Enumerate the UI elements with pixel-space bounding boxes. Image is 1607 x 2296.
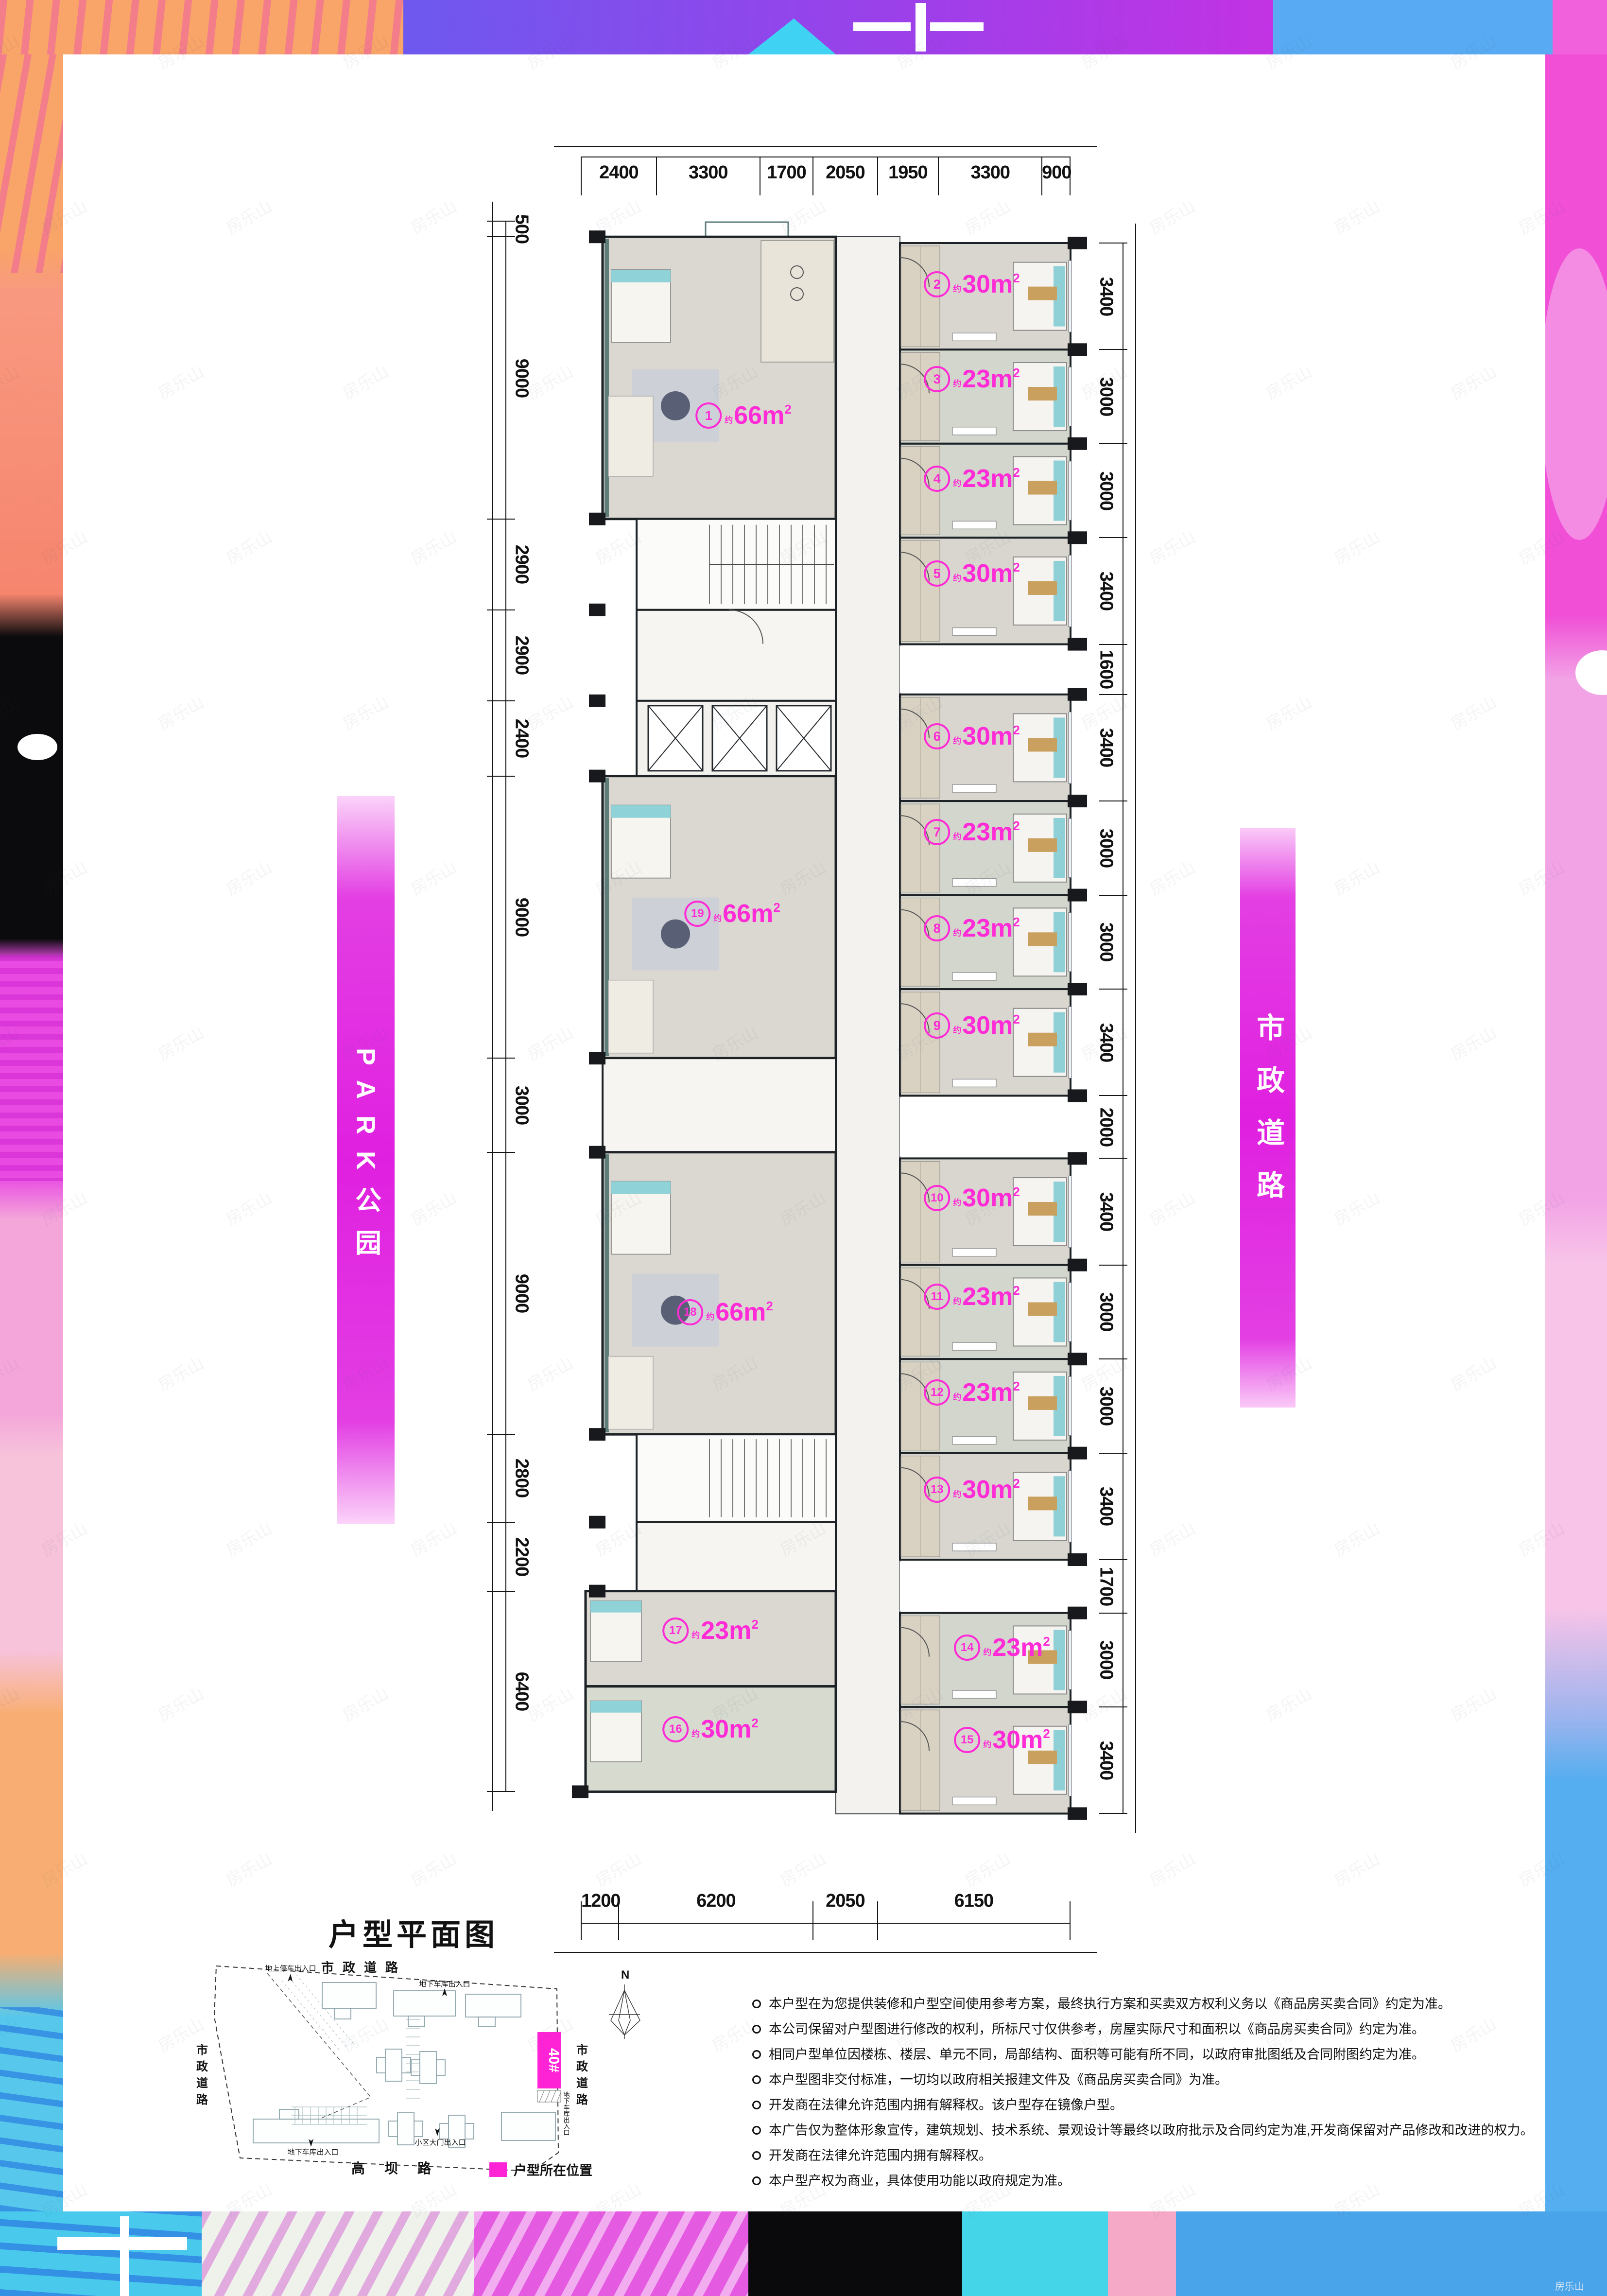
unit-area-sup: 2 — [1043, 1726, 1050, 1741]
unit-area-value: 66 — [715, 1298, 743, 1327]
unit-area-unit: m — [990, 818, 1013, 847]
unit-area-label: 2约30m2 — [924, 270, 1020, 299]
approx-label: 约 — [953, 377, 961, 389]
unit-area-value: 30 — [992, 1725, 1020, 1755]
unit-area-sup: 2 — [773, 900, 780, 915]
unit-area-label: 4约23m2 — [924, 464, 1020, 493]
unit-area-value: 23 — [992, 1633, 1020, 1662]
approx-label: 约 — [706, 1310, 714, 1322]
approx-label: 约 — [953, 926, 961, 938]
unit-area-value: 23 — [962, 365, 990, 394]
unit-area-sup: 2 — [1013, 1379, 1019, 1394]
unit-area-label: 1约66m2 — [695, 401, 792, 430]
approx-label: 约 — [983, 1645, 991, 1657]
unit-number-circle: 13 — [924, 1477, 950, 1503]
unit-area-sup: 2 — [1043, 1634, 1050, 1649]
unit-area-value: 30 — [701, 1715, 729, 1744]
unit-number-circle: 17 — [662, 1618, 689, 1644]
unit-area-unit: m — [751, 899, 773, 928]
approx-label: 约 — [691, 1628, 700, 1640]
unit-number-circle: 11 — [924, 1284, 950, 1310]
unit-area-unit: m — [990, 270, 1013, 299]
unit-area-label: 3约23m2 — [924, 365, 1020, 394]
approx-label: 约 — [983, 1738, 991, 1750]
unit-area-value: 66 — [723, 899, 751, 928]
unit-area-label: 13约30m2 — [924, 1475, 1020, 1504]
unit-number-circle: 14 — [954, 1635, 980, 1661]
unit-area-unit: m — [990, 559, 1013, 588]
unit-area-label: 10约30m2 — [924, 1183, 1020, 1213]
unit-area-label: 5约30m2 — [924, 559, 1020, 588]
unit-area-unit: m — [1020, 1725, 1043, 1755]
unit-area-label: 14约23m2 — [954, 1633, 1050, 1662]
unit-area-value: 30 — [962, 559, 990, 588]
unit-area-unit: m — [729, 1715, 751, 1744]
unit-area-sup: 2 — [766, 1299, 773, 1314]
unit-area-label: 11约23m2 — [924, 1282, 1020, 1311]
approx-label: 约 — [953, 282, 961, 294]
unit-area-unit: m — [743, 1298, 766, 1327]
unit-area-sup: 2 — [1013, 1012, 1019, 1027]
unit-area-sup: 2 — [1013, 560, 1019, 575]
unit-number-circle: 19 — [684, 901, 710, 927]
unit-area-value: 30 — [962, 270, 990, 299]
unit-number-circle: 16 — [662, 1716, 689, 1742]
unit-area-value: 30 — [962, 722, 990, 751]
unit-area-sup: 2 — [1013, 271, 1019, 286]
unit-area-label: 8约23m2 — [924, 914, 1020, 943]
unit-area-label: 6约30m2 — [924, 722, 1020, 751]
approx-label: 约 — [725, 413, 733, 425]
unit-area-sup: 2 — [1013, 1476, 1019, 1491]
unit-area-value: 23 — [701, 1616, 729, 1645]
unit-area-unit: m — [990, 722, 1013, 751]
floorplan-poster-page: PARK公园 市政道路 1约66m2 2约30m2 3约23m2 4约23m2 … — [0, 0, 1607, 2296]
unit-area-unit: m — [990, 914, 1013, 943]
unit-number-circle: 2 — [924, 271, 950, 297]
unit-area-unit: m — [990, 1011, 1013, 1040]
unit-area-label: 12约23m2 — [924, 1378, 1020, 1407]
unit-area-unit: m — [990, 1475, 1013, 1504]
approx-label: 约 — [953, 476, 961, 488]
approx-label: 约 — [713, 911, 722, 923]
unit-area-label: 17约23m2 — [662, 1616, 759, 1645]
approx-label: 约 — [953, 1487, 961, 1499]
unit-area-value: 30 — [962, 1475, 990, 1504]
unit-number-circle: 9 — [924, 1012, 950, 1039]
approx-label: 约 — [953, 1390, 961, 1402]
unit-area-value: 66 — [734, 401, 762, 430]
unit-number-circle: 1 — [695, 402, 722, 429]
unit-area-sup: 2 — [784, 402, 791, 417]
unit-number-circle: 5 — [924, 560, 950, 587]
unit-area-sup: 2 — [751, 1617, 758, 1632]
approx-label: 约 — [953, 1196, 961, 1208]
unit-number-circle: 15 — [954, 1727, 980, 1753]
approx-label: 约 — [953, 1023, 961, 1035]
unit-area-label: 15约30m2 — [954, 1725, 1050, 1755]
unit-number-circle: 4 — [924, 466, 950, 492]
unit-area-unit: m — [990, 365, 1013, 394]
approx-label: 约 — [953, 830, 961, 842]
unit-area-unit: m — [990, 1183, 1013, 1213]
unit-area-value: 23 — [962, 818, 990, 847]
unit-number-circle: 3 — [924, 366, 950, 392]
unit-area-sup: 2 — [1013, 1184, 1019, 1200]
unit-area-label: 7约23m2 — [924, 818, 1020, 847]
unit-area-unit: m — [1020, 1633, 1043, 1662]
unit-number-circle: 10 — [924, 1185, 950, 1211]
unit-number-circle: 7 — [924, 819, 950, 845]
approx-label: 约 — [953, 571, 961, 583]
unit-area-unit: m — [990, 1378, 1013, 1407]
unit-area-label: 19约66m2 — [684, 899, 780, 928]
approx-label: 约 — [953, 1294, 961, 1306]
unit-area-value: 23 — [962, 914, 990, 943]
unit-area-sup: 2 — [1013, 915, 1019, 930]
unit-area-sup: 2 — [1013, 723, 1019, 738]
unit-area-sup: 2 — [1013, 465, 1019, 480]
unit-area-value: 23 — [962, 1378, 990, 1407]
unit-area-value: 30 — [962, 1011, 990, 1040]
unit-area-sup: 2 — [751, 1716, 758, 1731]
unit-area-sup: 2 — [1013, 1283, 1019, 1298]
unit-area-value: 30 — [962, 1183, 990, 1213]
unit-area-unit: m — [990, 464, 1013, 493]
unit-area-label: 16约30m2 — [662, 1715, 759, 1744]
unit-number-circle: 18 — [677, 1299, 703, 1325]
unit-area-unit: m — [762, 401, 784, 430]
unit-area-unit: m — [990, 1282, 1013, 1311]
unit-labels-layer: 1约66m2 2约30m2 3约23m2 4约23m2 5约30m2 6约30m… — [0, 0, 1607, 2296]
unit-area-unit: m — [729, 1616, 751, 1645]
unit-area-value: 23 — [962, 1282, 990, 1311]
unit-area-label: 9约30m2 — [924, 1011, 1020, 1040]
unit-area-label: 18约66m2 — [677, 1298, 773, 1327]
unit-area-value: 23 — [962, 464, 990, 493]
approx-label: 约 — [953, 734, 961, 746]
unit-number-circle: 8 — [924, 915, 950, 941]
unit-number-circle: 12 — [924, 1379, 950, 1406]
unit-area-sup: 2 — [1013, 818, 1019, 834]
unit-number-circle: 6 — [924, 723, 950, 749]
unit-area-sup: 2 — [1013, 365, 1019, 381]
approx-label: 约 — [691, 1727, 700, 1739]
